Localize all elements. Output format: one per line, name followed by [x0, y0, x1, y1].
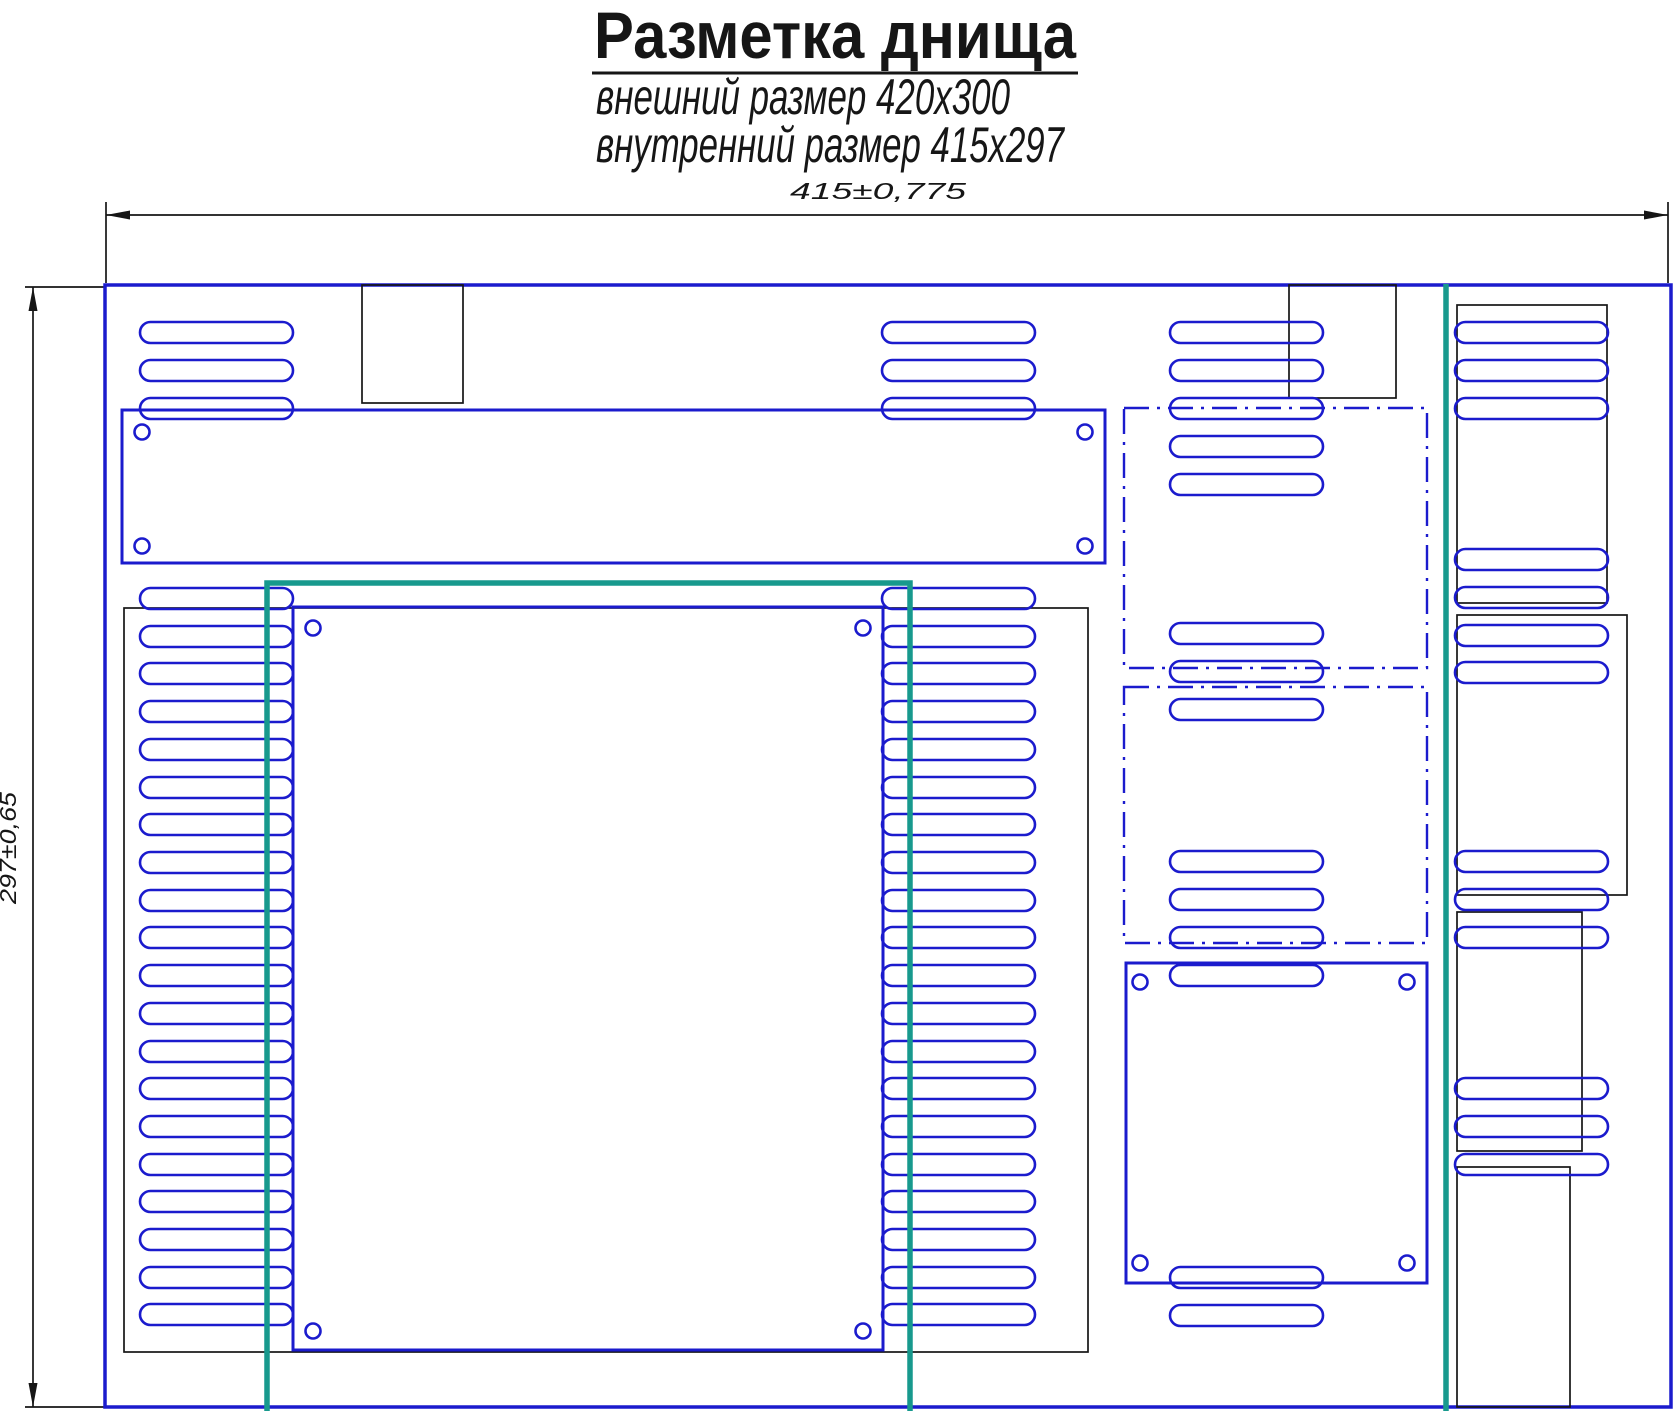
- dimension-arrow: [106, 211, 130, 220]
- vent-slot: [1455, 549, 1608, 570]
- vent-slot: [1455, 927, 1608, 948]
- mounting-hole: [1400, 1256, 1415, 1271]
- vent-slot: [140, 1041, 293, 1062]
- vent-slot: [882, 1078, 1035, 1099]
- top-plate-outline: [122, 410, 1105, 563]
- vent-slot: [140, 927, 293, 948]
- vent-slot: [1455, 1116, 1608, 1137]
- vent-slot: [882, 890, 1035, 911]
- dimension-arrow: [29, 1383, 38, 1407]
- mounting-hole: [1133, 975, 1148, 990]
- drawing-page: Разметка днища внешний размер 420x300 вн…: [0, 0, 1675, 1411]
- vent-slot: [1455, 889, 1608, 910]
- vent-slot: [1455, 322, 1608, 343]
- vent-slot: [140, 1116, 293, 1137]
- vent-slot: [140, 814, 293, 835]
- vent-slot: [1170, 623, 1323, 644]
- vent-slot: [882, 1154, 1035, 1175]
- vent-slot: [882, 701, 1035, 722]
- mounting-hole: [1078, 425, 1093, 440]
- vent-slot: [1170, 699, 1323, 720]
- vent-slot: [1455, 851, 1608, 872]
- vent-slot: [882, 965, 1035, 986]
- vent-slot: [1170, 1267, 1323, 1288]
- vent-slot: [1170, 889, 1323, 910]
- vent-slot: [1455, 662, 1608, 683]
- right-outline-bottom: [1457, 1167, 1570, 1407]
- vent-slot: [1455, 398, 1608, 419]
- vent-slot: [140, 1003, 293, 1024]
- vent-slot: [882, 1003, 1035, 1024]
- vent-slot: [140, 965, 293, 986]
- zone-lower: [1124, 687, 1427, 943]
- dimension-arrow: [1644, 211, 1668, 220]
- dimension-arrow: [29, 287, 38, 311]
- vent-slot: [1170, 360, 1323, 381]
- vent-slot: [882, 322, 1035, 343]
- vent-slot: [882, 777, 1035, 798]
- vent-slot: [140, 1191, 293, 1212]
- vent-slot: [140, 1267, 293, 1288]
- vent-slot: [1455, 1078, 1608, 1099]
- subtitle-inner-size: внутренний размер 415x297: [596, 117, 1066, 173]
- vent-slot: [140, 852, 293, 873]
- vent-slot: [140, 360, 293, 381]
- slots-right: [1455, 322, 1608, 1175]
- lower-right-plate-outline: [1126, 963, 1427, 1283]
- drawing-canvas: Разметка днища внешний размер 420x300 вн…: [0, 0, 1675, 1411]
- vent-slot: [140, 1078, 293, 1099]
- center-plate: [293, 607, 883, 1350]
- vent-slot: [140, 626, 293, 647]
- mounting-hole: [856, 1324, 871, 1339]
- cutout-top-left: [362, 285, 463, 403]
- vent-slot: [882, 739, 1035, 760]
- vent-slot: [1170, 1305, 1323, 1326]
- vent-slot: [882, 626, 1035, 647]
- vent-slot: [1455, 1154, 1608, 1175]
- vent-slot: [1170, 927, 1323, 948]
- mounting-hole: [135, 425, 150, 440]
- reference-outlines: [124, 285, 1627, 1407]
- vent-slot: [1170, 474, 1323, 495]
- outer-boundary: [105, 285, 1671, 1407]
- vent-slots: [140, 322, 1608, 1326]
- slots-mid-left: [882, 322, 1035, 1325]
- vent-slot: [1170, 661, 1323, 682]
- vent-slot: [882, 1191, 1035, 1212]
- vent-slot: [882, 1267, 1035, 1288]
- vent-slot: [140, 1304, 293, 1325]
- dimension-height-label: 297±0,65: [0, 792, 21, 905]
- vent-slot: [140, 322, 293, 343]
- slots-mid-right: [1170, 322, 1323, 1326]
- vent-slot: [882, 588, 1035, 609]
- page-title: Разметка днища: [594, 0, 1077, 72]
- mounting-plates: [122, 410, 1427, 1350]
- vent-slot: [1455, 360, 1608, 381]
- vent-slot: [140, 701, 293, 722]
- vent-slot: [882, 1041, 1035, 1062]
- mounting-hole: [1400, 975, 1415, 990]
- vent-slot: [882, 1304, 1035, 1325]
- vent-slot: [882, 360, 1035, 381]
- outer-rectangle: [105, 285, 1671, 1407]
- vent-slot: [140, 663, 293, 684]
- vent-slot: [140, 777, 293, 798]
- slots-left: [140, 322, 293, 1325]
- vent-slot: [882, 663, 1035, 684]
- mounting-hole: [1078, 539, 1093, 554]
- teal-marking-rect: [267, 583, 910, 1411]
- dimension-lines: [25, 202, 1668, 1407]
- lower-right-plate: [1126, 963, 1427, 1283]
- vent-slot: [1170, 965, 1323, 986]
- vent-slot: [882, 852, 1035, 873]
- teal-marking: [267, 284, 1446, 1411]
- vent-slot: [140, 1154, 293, 1175]
- vent-slot: [140, 739, 293, 760]
- vent-slot: [140, 1229, 293, 1250]
- vent-slot: [1170, 851, 1323, 872]
- right-outline-upper: [1457, 305, 1607, 603]
- mounting-hole: [306, 621, 321, 636]
- vent-slot: [882, 814, 1035, 835]
- vent-slot: [140, 890, 293, 911]
- vent-slot: [1455, 587, 1608, 608]
- title-block: Разметка днища внешний размер 420x300 вн…: [592, 0, 1078, 173]
- vent-slot: [1170, 322, 1323, 343]
- vent-slot: [882, 927, 1035, 948]
- vent-slot: [140, 588, 293, 609]
- top-plate: [122, 410, 1105, 563]
- mounting-hole: [306, 1324, 321, 1339]
- mounting-hole: [1133, 1256, 1148, 1271]
- mounting-hole: [856, 621, 871, 636]
- center-plate-outline: [293, 607, 883, 1350]
- vent-slot: [1170, 436, 1323, 457]
- vent-slot: [882, 1229, 1035, 1250]
- dimension-width-label: 415±0,775: [790, 178, 966, 204]
- vent-slot: [882, 1116, 1035, 1137]
- mounting-hole: [135, 539, 150, 554]
- vent-slot: [1455, 625, 1608, 646]
